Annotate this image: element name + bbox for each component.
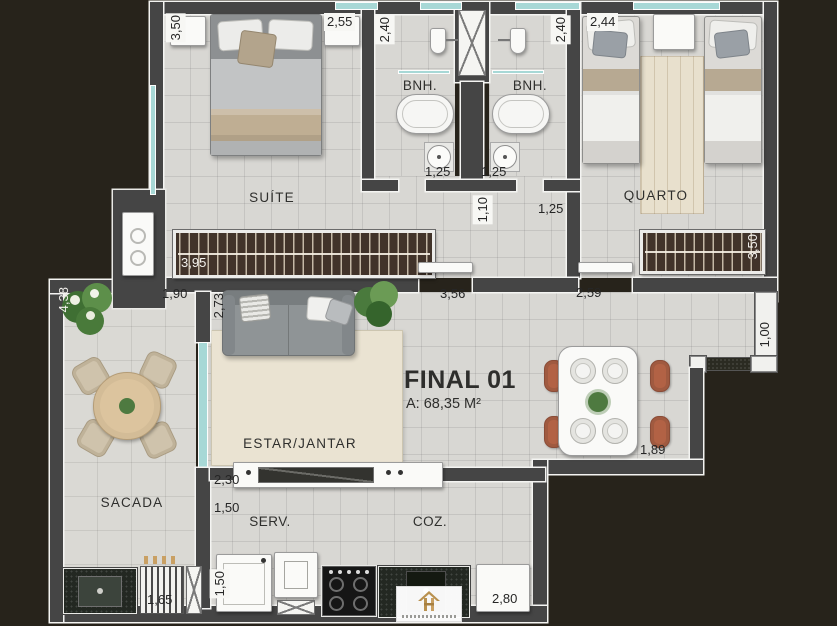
- plant-leaf: [366, 301, 392, 327]
- wall-quarto-left: [567, 2, 580, 278]
- dim-suite-depth: 3,50: [167, 14, 185, 41]
- dining-chair: [650, 360, 670, 392]
- ac-unit: [122, 212, 154, 276]
- toilet-2: [510, 28, 526, 54]
- bed-foot: [583, 141, 639, 163]
- dim-counter-len: 2,30: [214, 473, 239, 487]
- dim-bnh1-door: 1,25: [425, 165, 450, 179]
- sofa-pillow-striped: [239, 294, 272, 323]
- duct-shaft: [458, 10, 486, 76]
- peninsula-sink: [258, 467, 374, 483]
- room-label-kitchen: COZ.: [402, 514, 458, 529]
- plate: [570, 418, 596, 444]
- stove-knob: [356, 570, 360, 574]
- dim-quarto-width: 2,44: [588, 14, 617, 30]
- wall-right-upper: [764, 2, 777, 301]
- bed-accent-pillow: [592, 29, 629, 58]
- bed-foot: [705, 141, 761, 163]
- dim-grill-width: 1,65: [147, 593, 172, 607]
- plant-flower: [86, 311, 95, 320]
- wall-mid-b: [473, 278, 578, 292]
- bed-throw: [705, 69, 761, 91]
- stove: [322, 566, 376, 616]
- toilet-1: [430, 28, 446, 54]
- basin-2-drain: [503, 155, 507, 159]
- tank-basin: [284, 561, 308, 589]
- suite-bed: [210, 14, 322, 156]
- plant-flower: [70, 295, 80, 305]
- balcony-plants: [62, 283, 122, 341]
- ac-fan: [130, 228, 146, 244]
- peninsula-knob: [398, 470, 403, 475]
- plate: [602, 358, 628, 384]
- tub-inner: [402, 100, 448, 128]
- duct-box-balcony: [186, 566, 202, 614]
- wall-dining-bottom: [545, 460, 703, 474]
- wall-suite-bath: [362, 2, 374, 191]
- dim-quarto-closet: 3,50: [746, 234, 760, 259]
- stove-knob: [329, 570, 333, 574]
- bed-throw: [583, 69, 639, 91]
- wall-balcony-living-a: [196, 292, 210, 342]
- balcony-glass-door: [198, 342, 208, 468]
- burner: [329, 596, 344, 611]
- wall-bath-bottom-c: [544, 180, 580, 191]
- room-label-sacada: SACADA: [94, 495, 170, 510]
- bathtub-2: [492, 94, 550, 134]
- logo-microtext: [402, 615, 456, 618]
- burner: [353, 577, 368, 592]
- balcony-table-plant: [119, 398, 135, 414]
- window-quarto: [633, 2, 720, 10]
- bed-duvet: [705, 91, 761, 141]
- floor-plan: SUÍTE BNH. BNH. QUARTO ESTAR/JANTAR SACA…: [0, 0, 837, 626]
- dim-living-width: 3,56: [440, 287, 465, 301]
- quarto-door-leaf: [578, 262, 633, 273]
- dim-suite-closet: 3,95: [181, 256, 206, 270]
- dim-living-depth: 2,73: [212, 293, 226, 318]
- plate: [602, 418, 628, 444]
- peninsula-knob: [386, 470, 391, 475]
- table-centerpiece: [588, 392, 608, 412]
- room-label-living: ESTAR/JANTAR: [228, 436, 372, 451]
- window-top-1: [335, 2, 378, 10]
- room-label-service: SERV.: [240, 514, 300, 529]
- stove-knob: [338, 570, 342, 574]
- toilet-2-pipe: [498, 39, 510, 41]
- washer-lid: [223, 563, 265, 605]
- unit-title: FINAL 01: [404, 366, 534, 395]
- bed-duvet: [583, 91, 639, 141]
- wall-dining-right: [690, 368, 703, 472]
- wall-bath-divider: [461, 82, 483, 191]
- burner: [353, 596, 368, 611]
- dim-hall-len: 1,90: [162, 287, 187, 301]
- peninsula-knob: [246, 470, 251, 475]
- room-label-suite: SUÍTE: [222, 190, 322, 205]
- wall-kitchen-stub-right: [443, 468, 545, 481]
- burner: [329, 577, 344, 592]
- quarto-bed-left: [582, 16, 640, 164]
- bed-accent-pillow: [714, 29, 751, 59]
- closet-rail: [178, 253, 430, 255]
- dim-suite-width: 2,55: [325, 14, 354, 30]
- grill-skewer-handles: [144, 556, 180, 564]
- glass-shelf-1: [398, 70, 450, 74]
- room-label-quarto: QUARTO: [606, 188, 706, 203]
- wall-kitchen-right: [533, 460, 547, 620]
- plate: [570, 358, 596, 384]
- stove-knob: [365, 570, 369, 574]
- dim-hall-door: 1,25: [538, 202, 563, 216]
- living-plant: [350, 281, 402, 333]
- dim-service-width: 1,50: [211, 570, 229, 597]
- logo-house-icon: [416, 590, 442, 612]
- suite-closet: [173, 230, 435, 278]
- plant-flower: [90, 289, 99, 298]
- sofa-seat-split: [288, 305, 289, 355]
- dim-entry-wall: 1,00: [758, 322, 772, 347]
- laundry-tank: [274, 552, 318, 598]
- quarto-nightstand: [653, 14, 695, 50]
- room-label-bnh1: BNH.: [396, 78, 444, 93]
- suite-door-leaf: [418, 262, 473, 273]
- bathtub-1: [396, 94, 454, 134]
- stove-knob: [347, 570, 351, 574]
- developer-logo: [396, 586, 462, 622]
- tub-inner: [498, 100, 544, 128]
- dim-sacada-depth: 4,38: [57, 287, 71, 312]
- gourmet-faucet: [97, 588, 103, 594]
- sofa: [222, 290, 355, 356]
- dim-bnh2-door: 1,25: [481, 165, 506, 179]
- dim-bnh1-depth: 2,40: [376, 16, 394, 43]
- room-label-bnh2: BNH.: [506, 78, 554, 93]
- wall-entry-step-b: [751, 356, 777, 372]
- dim-service-len: 1,50: [214, 501, 239, 515]
- quarto-bed-right: [704, 16, 762, 164]
- closet-rail: [645, 251, 760, 253]
- window-top-3: [515, 2, 580, 10]
- dim-hall-width: 1,10: [474, 196, 492, 223]
- window-suite-side: [150, 85, 156, 195]
- dim-bnh2-depth: 2,40: [552, 16, 570, 43]
- bed-accent-pillow: [237, 30, 277, 69]
- window-top-2: [420, 2, 462, 10]
- wall-mid-c: [633, 278, 777, 292]
- washer-button: [261, 558, 266, 563]
- wall-bath-bottom-a: [362, 180, 398, 191]
- entry-doormat: [706, 357, 751, 371]
- basin-1-drain: [437, 155, 441, 159]
- glass-shelf-2: [492, 70, 544, 74]
- wall-bath-bottom-b: [426, 180, 516, 191]
- duct-box-service: [277, 600, 315, 615]
- dim-dining-width: 2,59: [576, 286, 601, 300]
- toilet-1-pipe: [446, 39, 458, 41]
- bed-throw: [211, 109, 321, 141]
- dim-kitchen-width: 2,80: [492, 592, 517, 606]
- bed-foot: [211, 141, 321, 155]
- ac-fan-2: [130, 250, 146, 266]
- dim-dining-side: 1,89: [640, 443, 665, 457]
- unit-area: A: 68,35 M²: [406, 396, 536, 412]
